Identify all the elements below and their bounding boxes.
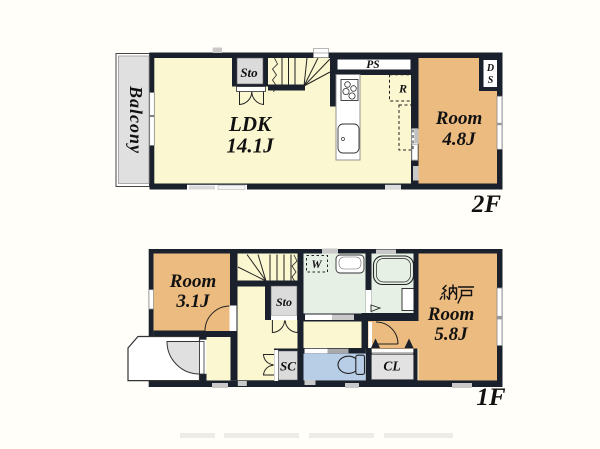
svg-text:14.1J: 14.1J — [226, 134, 275, 158]
svg-text:CL: CL — [383, 359, 400, 374]
svg-text:4.8J: 4.8J — [441, 129, 476, 150]
svg-text:Room: Room — [427, 304, 474, 325]
svg-text:LDK: LDK — [228, 112, 273, 136]
svg-text:PS: PS — [366, 59, 379, 71]
svg-text:W: W — [311, 259, 322, 271]
svg-text:R: R — [398, 82, 407, 96]
svg-text:Room: Room — [435, 108, 482, 129]
svg-text:Balcony: Balcony — [126, 85, 146, 154]
svg-text:5.8J: 5.8J — [434, 324, 468, 345]
svg-text:Sto: Sto — [276, 295, 292, 309]
svg-text:Sto: Sto — [240, 65, 258, 80]
svg-text:D: D — [486, 63, 494, 74]
svg-text:1F: 1F — [476, 384, 506, 411]
svg-text:2F: 2F — [471, 191, 502, 218]
svg-text:SC: SC — [280, 359, 296, 374]
svg-text:3.1J: 3.1J — [175, 291, 210, 312]
svg-text:S: S — [488, 75, 494, 86]
svg-text:Room: Room — [169, 271, 216, 292]
